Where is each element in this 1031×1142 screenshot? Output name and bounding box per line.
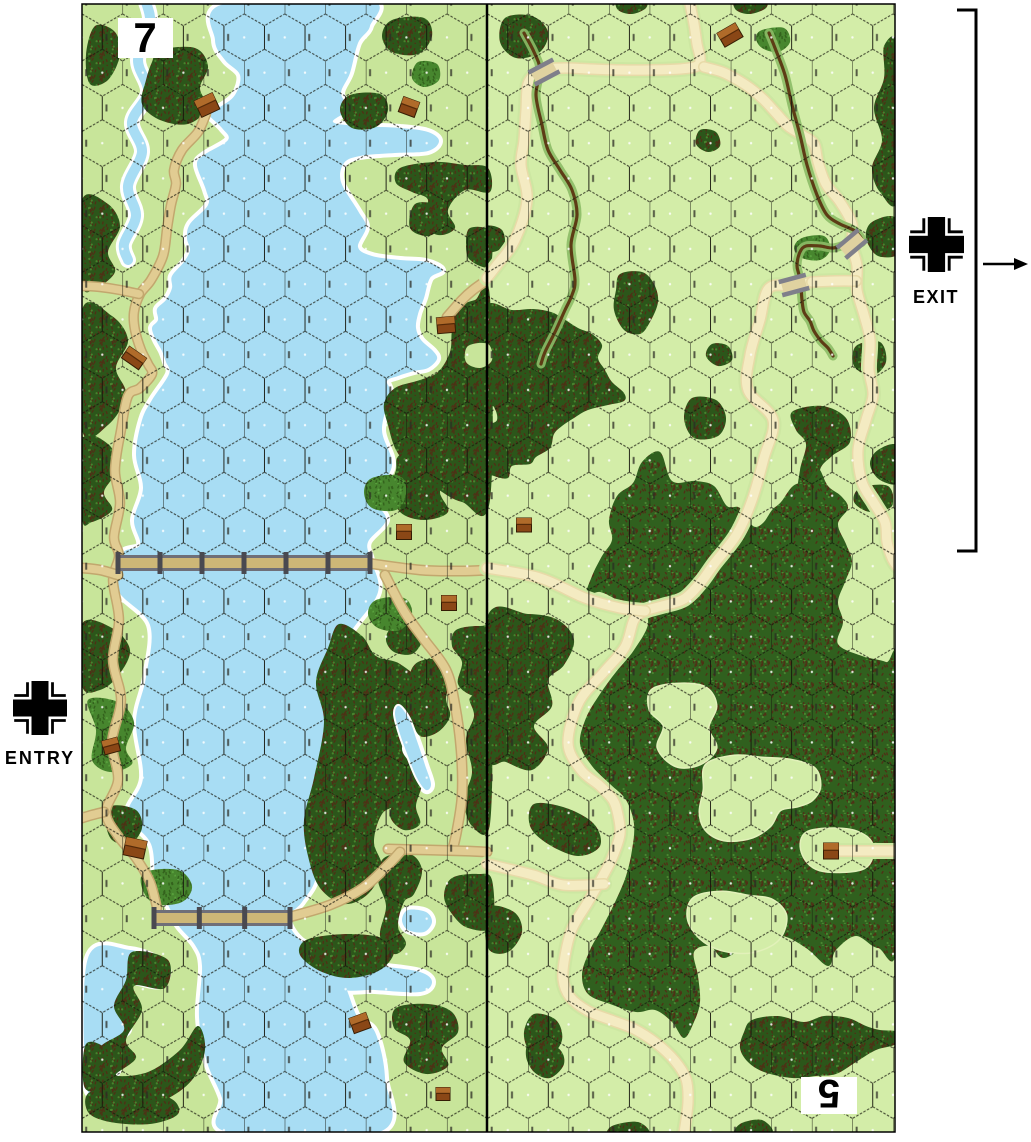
- svg-text:7: 7: [133, 14, 156, 61]
- svg-text:5: 5: [818, 1071, 840, 1115]
- svg-text:ENTRY: ENTRY: [5, 748, 75, 768]
- svg-text:EXIT: EXIT: [913, 287, 959, 307]
